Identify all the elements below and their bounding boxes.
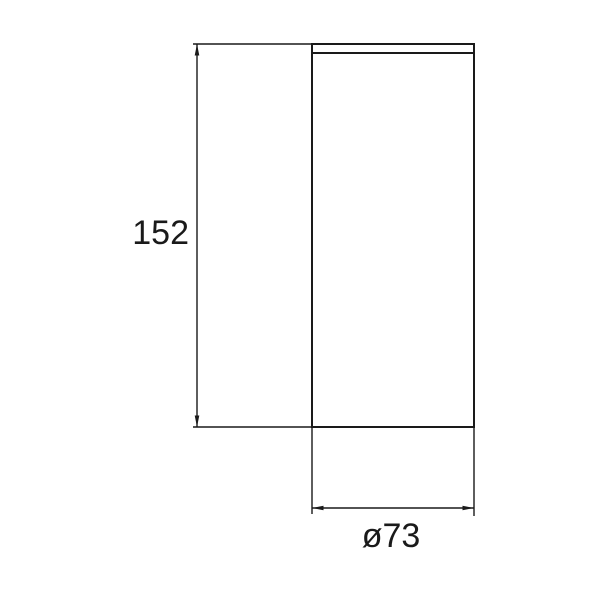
dimension-arrow-right-icon <box>463 506 475 511</box>
height-dimension: 152 <box>132 44 311 427</box>
height-dimension-label: 152 <box>132 214 189 252</box>
technical-drawing-page: 152 ø73 <box>0 0 600 600</box>
cylinder-outline <box>312 44 474 427</box>
technical-drawing-canvas: 152 ø73 <box>0 0 600 600</box>
dimension-arrow-up-icon <box>195 44 200 56</box>
diameter-dimension: ø73 <box>312 427 474 555</box>
dimension-arrow-down-icon <box>195 416 200 428</box>
dimension-arrow-left-icon <box>312 506 324 511</box>
cylinder-body-outline <box>312 44 474 427</box>
diameter-dimension-label: ø73 <box>362 517 421 555</box>
